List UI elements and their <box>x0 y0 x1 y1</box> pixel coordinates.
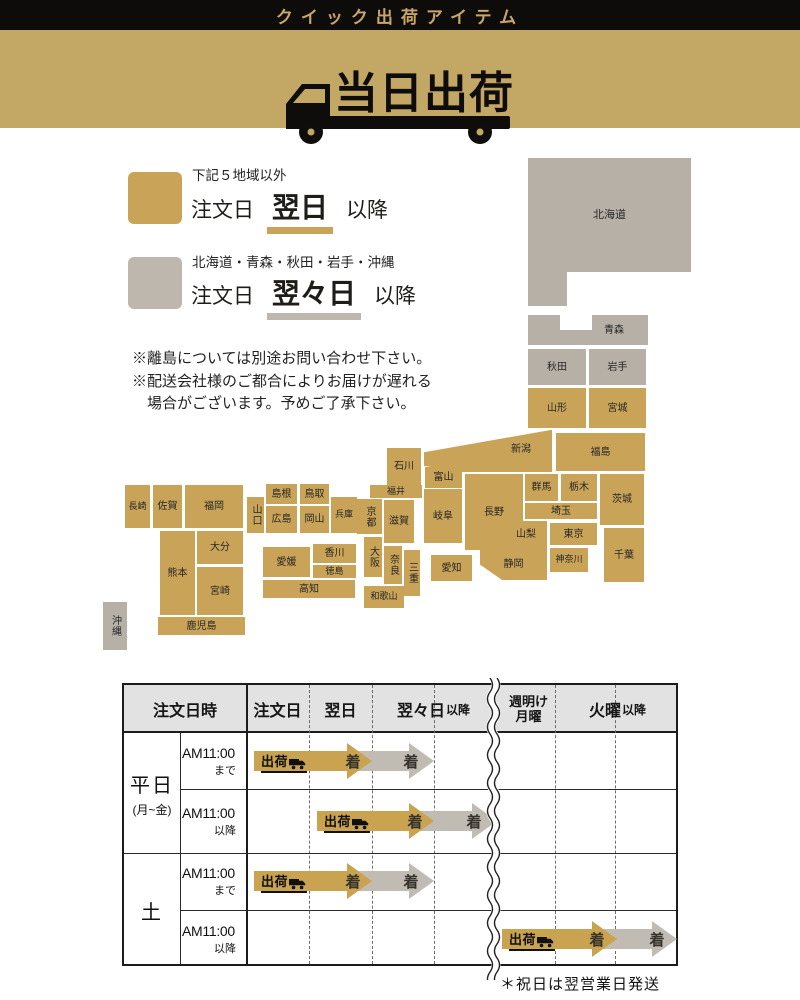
map-pref-ibaraki: 茨城 <box>600 474 644 525</box>
col-header-order-datetime: 注文日時 <box>124 685 246 733</box>
map-pref-okayama: 岡山 <box>300 506 329 533</box>
legend-highlight-two-days: 翌々日 <box>267 272 361 320</box>
map-pref-ehime: 愛媛 <box>263 547 310 577</box>
map-pref-kochi: 高知 <box>263 580 355 598</box>
map-pref-kumamoto: 熊本 <box>160 531 195 615</box>
truck-icon <box>537 934 555 948</box>
col-header-two-days-later: 翌々日以降 <box>372 685 495 733</box>
time-label-row2: AM11:00以降 <box>182 805 240 838</box>
col-header-monday: 週明け月曜 <box>502 685 555 733</box>
legend-rule-next-day: 注文日 翌日 以降 <box>191 186 388 234</box>
col-header-order-day: 注文日 <box>246 685 309 733</box>
ship-label: 出荷 <box>261 751 307 773</box>
map-pref-miyagi: 宮城 <box>589 388 646 428</box>
arrive-label: 着 <box>344 751 362 772</box>
map-pref-saga: 佐賀 <box>153 485 182 528</box>
map-pref-gifu: 岐阜 <box>424 489 462 543</box>
map-pref-hokkaido: 北海道 <box>528 158 691 272</box>
holiday-footnote: ＊祝日は翌営業日発送 <box>500 973 660 994</box>
map-pref-osaka: 大阪 <box>364 537 382 577</box>
map-pref-tokushima: 徳島 <box>313 565 356 578</box>
map-pref-iwate: 岩手 <box>589 349 646 385</box>
row-divider <box>180 789 676 790</box>
grid-line <box>180 733 181 964</box>
map-pref-fukui: 福井 <box>370 485 422 498</box>
map-pref-akita: 秋田 <box>528 349 586 385</box>
map-pref-nara: 奈良 <box>384 546 402 584</box>
map-pref-mie: 三重 <box>404 550 420 596</box>
row-divider <box>180 910 676 911</box>
map-pref-tokyo: 東京 <box>550 523 597 545</box>
ship-label: 出荷 <box>261 871 307 893</box>
map-pref-kagoshima: 鹿児島 <box>158 617 245 635</box>
legend-suffix: 以降 <box>374 280 416 310</box>
map-pref-kagawa: 香川 <box>313 544 356 563</box>
map-pref-aichi: 愛知 <box>431 555 472 581</box>
legend-swatch-two-days <box>128 257 182 309</box>
note-line: 場合がございます。予めご了承下さい。 <box>132 393 432 416</box>
same-day-shipping-banner: 当日出荷 <box>0 30 800 128</box>
map-pref-saitama: 埼玉 <box>525 503 597 519</box>
time-label-row3: AM11:00まで <box>182 865 240 898</box>
legend-rule-two-days: 注文日 翌々日 以降 <box>191 272 416 320</box>
col-header-tuesday: 火曜以降 <box>555 685 680 733</box>
map-pref-okinawa: 沖縄 <box>103 602 127 650</box>
map-pref-shimane: 島根 <box>266 484 297 504</box>
top-title-bar: クイック出荷アイテム <box>0 0 800 30</box>
map-pref-chiba: 千葉 <box>604 528 644 582</box>
top-title: クイック出荷アイテム <box>276 3 524 28</box>
map-pref-fukushima: 福島 <box>556 433 645 471</box>
shipping-schedule-table: 注文日時 注文日 翌日 翌々日以降 週明け月曜 火曜以降 平日 (月~金) 土 … <box>122 683 678 966</box>
map-pref-tottori: 鳥取 <box>300 484 329 504</box>
ship-label: 出荷 <box>509 929 555 951</box>
map-pref-yamaguchi: 山口 <box>247 497 264 533</box>
ship-label: 出荷 <box>324 811 370 833</box>
legend-swatch-next-day <box>128 172 182 224</box>
map-pref-shiga: 滋賀 <box>384 500 414 543</box>
map-pref-yamagata: 山形 <box>528 388 586 428</box>
map-pref-oita: 大分 <box>197 531 243 564</box>
arrive-label: 着 <box>588 929 606 950</box>
map-mutsu-bay-notch <box>560 315 592 330</box>
arrive-label: 着 <box>402 751 420 772</box>
map-pref-nagasaki: 長崎 <box>125 485 150 528</box>
map-pref-toyama: 富山 <box>425 467 462 488</box>
time-label-row4: AM11:00以降 <box>182 923 240 956</box>
map-pref-yamanashi: 山梨 <box>505 521 547 548</box>
map-pref-hokkaido-peninsula <box>528 272 567 306</box>
arrive-label: 着 <box>344 871 362 892</box>
arrive-label: 着 <box>406 811 424 832</box>
truck-icon <box>289 756 307 770</box>
row-group-weekday: 平日 (月~金) <box>124 733 180 853</box>
group-divider <box>124 853 676 854</box>
map-pref-shizuoka: 静岡 <box>480 548 547 580</box>
map-pref-kanagawa: 神奈川 <box>550 548 588 572</box>
map-pref-kyoto: 京都 <box>357 499 382 534</box>
map-pref-fukuoka: 福岡 <box>185 485 243 528</box>
legend-condition-two-days: 北海道・青森・秋田・岩手・沖縄 <box>192 251 395 271</box>
map-pref-miyazaki: 宮崎 <box>197 567 243 615</box>
col-header-next-day: 翌日 <box>309 685 372 733</box>
map-pref-hyogo: 兵庫 <box>331 497 357 533</box>
note-line: ※配送会社様のご都合によりお届けが遅れる <box>132 371 432 394</box>
legend-prefix: 注文日 <box>191 194 254 224</box>
disclaimer-notes: ※離島については別途お問い合わせ下さい。 ※配送会社様のご都合によりお届けが遅れ… <box>132 348 432 416</box>
arrive-label: 着 <box>648 929 666 950</box>
time-break-wavy-line <box>486 678 501 980</box>
truck-icon <box>289 876 307 890</box>
banner-title: 当日出荷 <box>334 72 514 116</box>
map-pref-wakayama: 和歌山 <box>364 586 404 608</box>
row-group-saturday: 土 <box>124 853 180 968</box>
map-pref-tochigi: 栃木 <box>561 474 597 501</box>
arrive-label: 着 <box>465 811 483 832</box>
shipping-infographic: クイック出荷アイテム 当日出荷 下記５地域以外 注文日 翌日 以降 北海道・青森… <box>0 0 800 1000</box>
arrive-label: 着 <box>402 871 420 892</box>
map-pref-hiroshima: 広島 <box>266 506 297 533</box>
legend-suffix: 以降 <box>346 194 388 224</box>
map-pref-gunma: 群馬 <box>525 474 558 501</box>
map-pref-niigata: 新潟 <box>424 428 552 472</box>
time-label-row1: AM11:00まで <box>182 745 240 778</box>
truck-icon <box>352 816 370 830</box>
map-pref-ishikawa: 石川 <box>387 448 421 485</box>
note-line: ※離島については別途お問い合わせ下さい。 <box>132 348 432 371</box>
legend-condition-next-day: 下記５地域以外 <box>192 164 287 184</box>
legend-prefix: 注文日 <box>191 280 254 310</box>
legend-highlight-next-day: 翌日 <box>267 186 333 234</box>
